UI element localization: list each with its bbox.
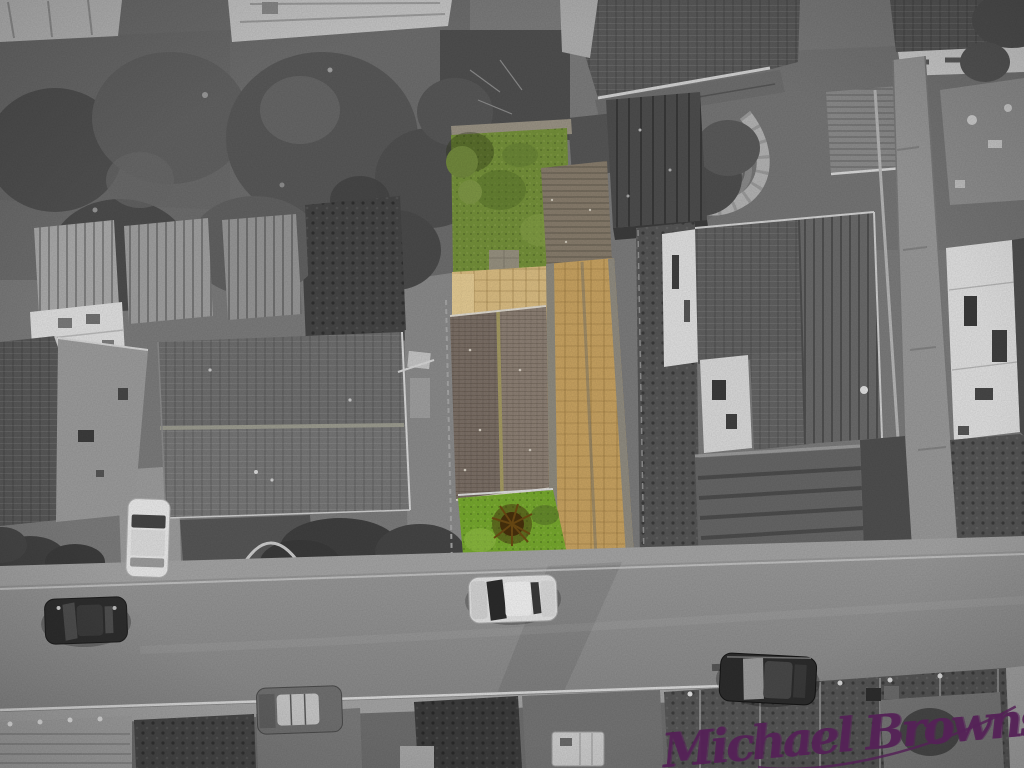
vignette-overlay xyxy=(0,0,1024,768)
aerial-photo-canvas: Michael Brownsett Michael Brownsett xyxy=(0,0,1024,768)
aerial-photo: Michael Brownsett Michael Brownsett xyxy=(0,0,1024,768)
